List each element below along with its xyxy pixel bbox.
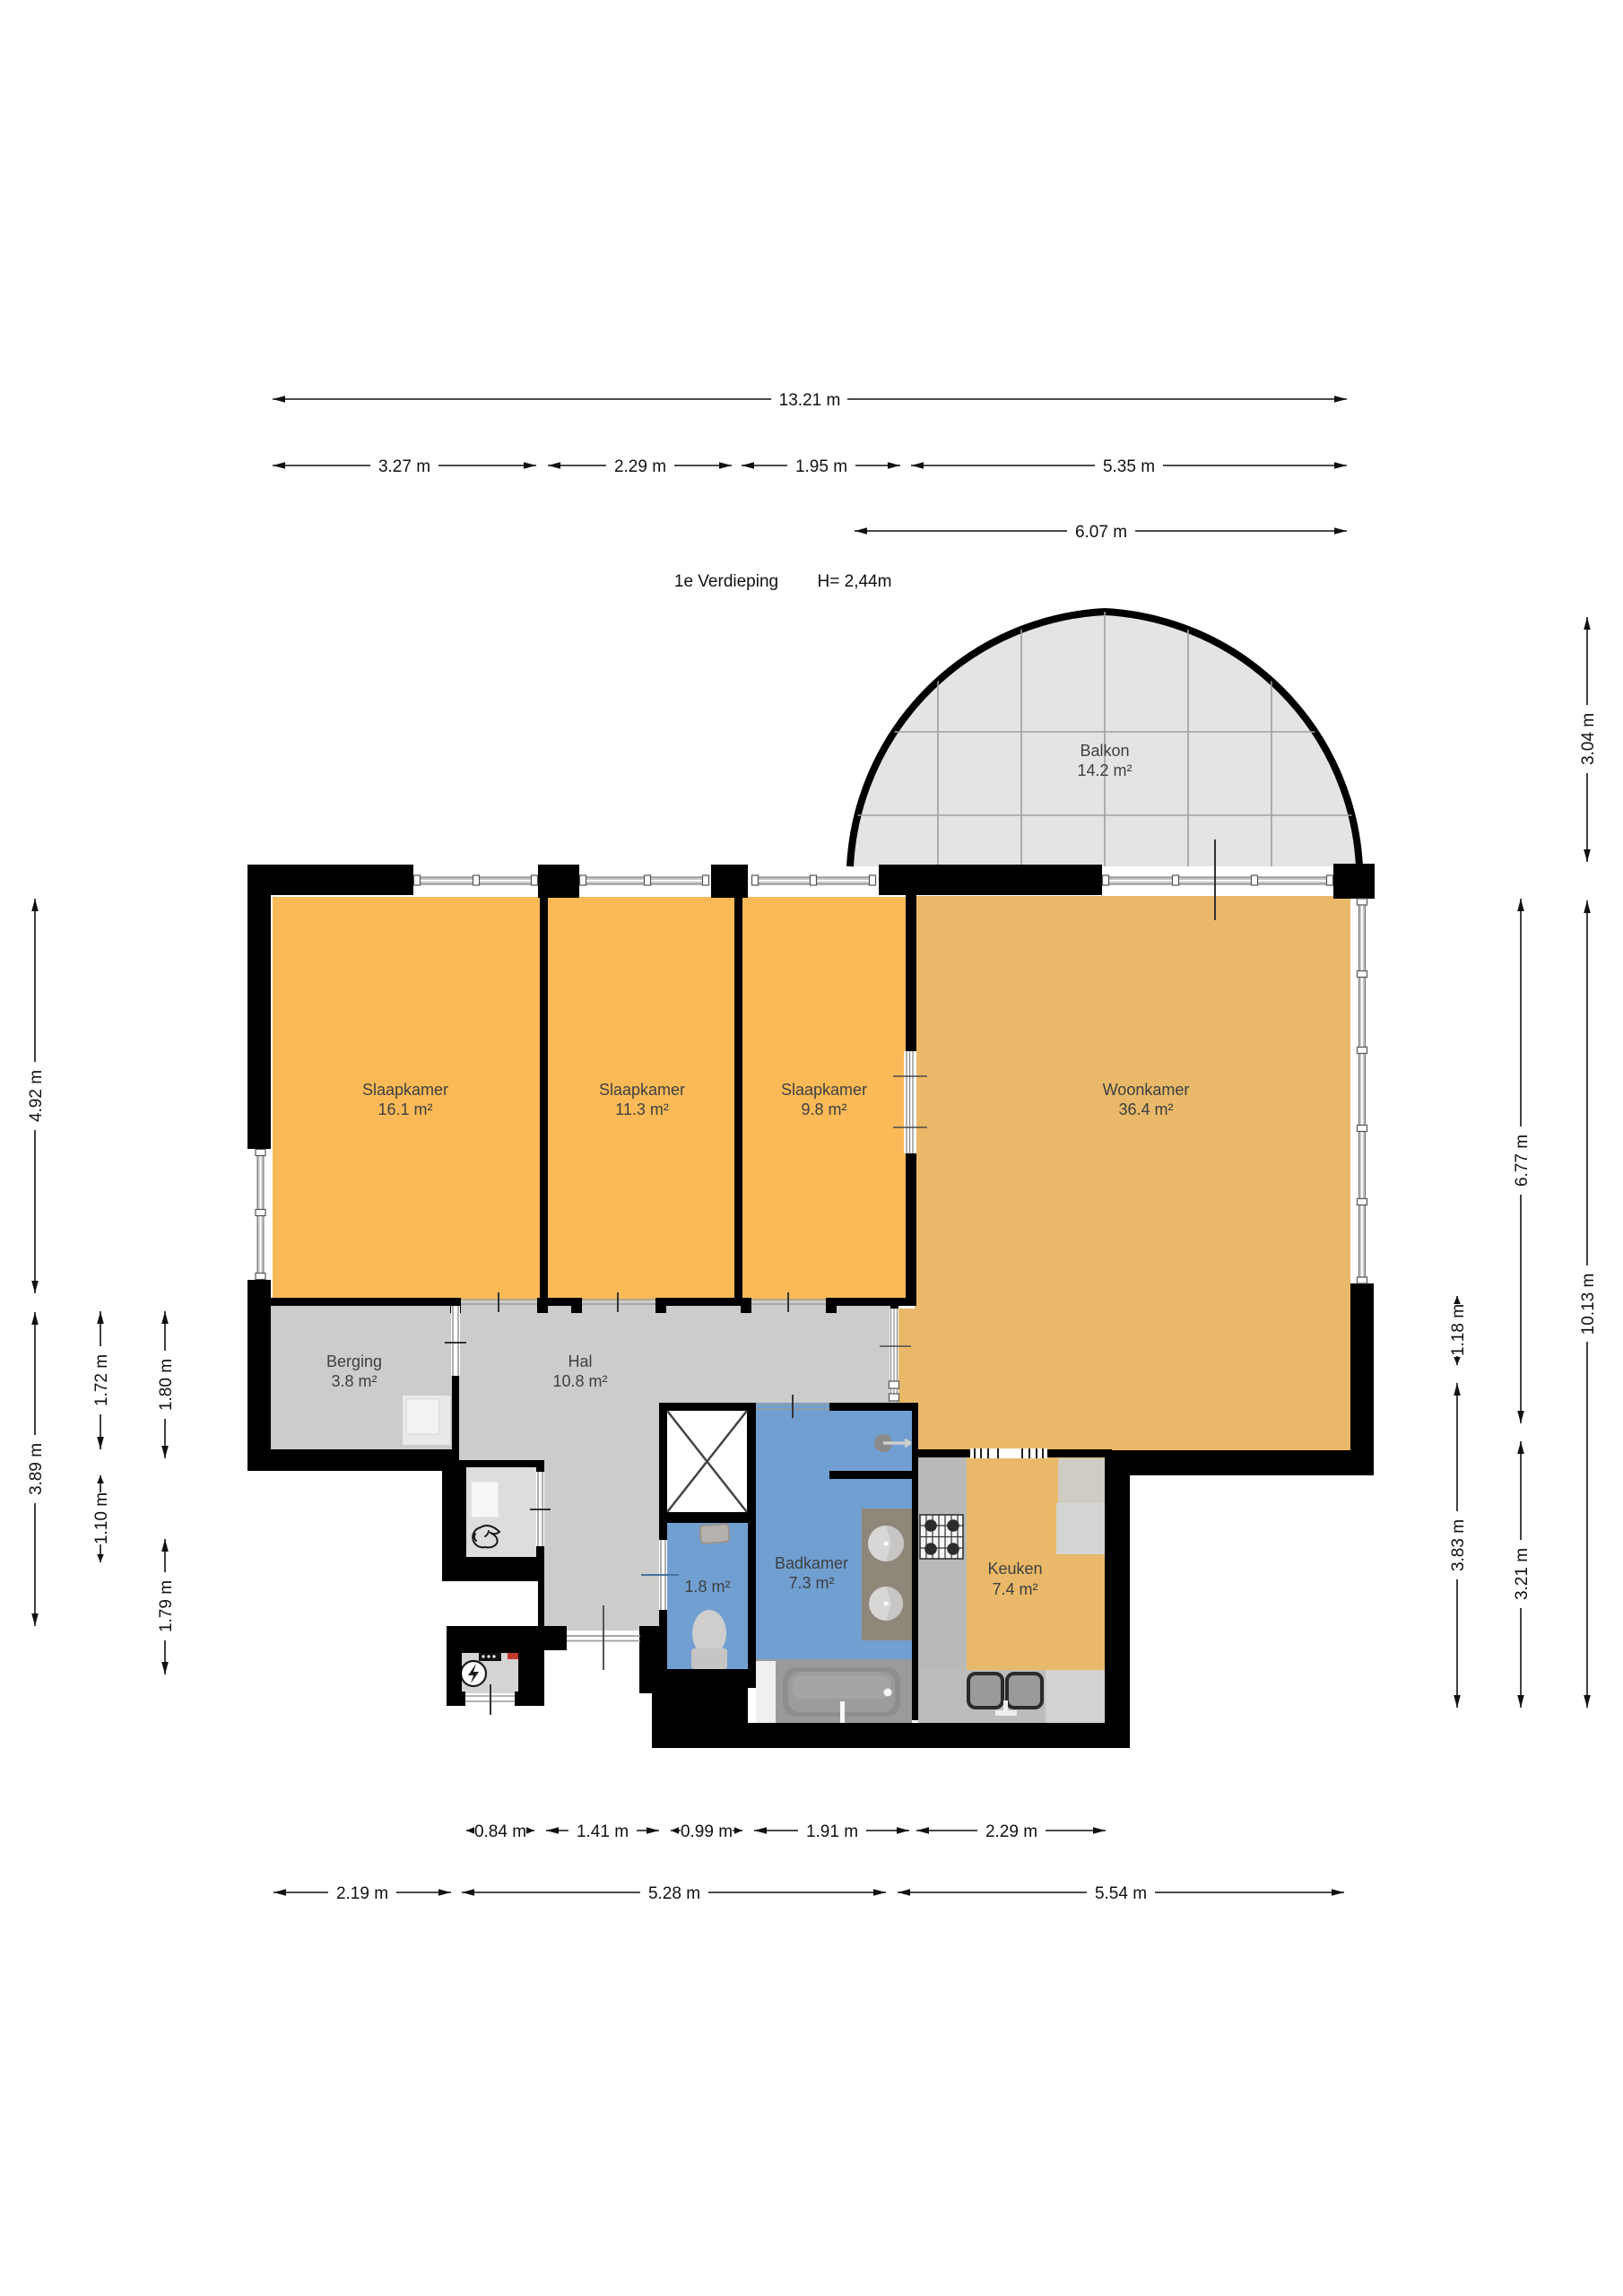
svg-text:1.80 m: 1.80 m <box>157 1359 176 1411</box>
svg-text:Balkon: Balkon <box>1080 742 1129 760</box>
svg-text:3.21 m: 3.21 m <box>1513 1548 1532 1600</box>
svg-text:Badkamer: Badkamer <box>775 1554 848 1572</box>
svg-text:Slaapkamer: Slaapkamer <box>599 1081 685 1099</box>
svg-text:13.21 m: 13.21 m <box>779 391 841 410</box>
svg-text:6.77 m: 6.77 m <box>1513 1135 1532 1187</box>
svg-text:2.29 m: 2.29 m <box>614 457 666 476</box>
svg-text:10.8 m²: 10.8 m² <box>552 1372 607 1390</box>
svg-text:7.3 m²: 7.3 m² <box>788 1574 834 1592</box>
svg-text:3.89 m: 3.89 m <box>27 1443 46 1495</box>
svg-text:Slaapkamer: Slaapkamer <box>781 1081 867 1099</box>
svg-text:Slaapkamer: Slaapkamer <box>362 1081 448 1099</box>
svg-text:5.35 m: 5.35 m <box>1103 457 1155 476</box>
svg-text:Berging: Berging <box>326 1352 382 1370</box>
svg-text:1e Verdieping: 1e Verdieping <box>674 572 778 591</box>
svg-text:Hal: Hal <box>568 1352 592 1370</box>
svg-text:1.18 m: 1.18 m <box>1449 1304 1468 1356</box>
svg-text:3.8 m²: 3.8 m² <box>331 1372 377 1390</box>
svg-text:2.29 m: 2.29 m <box>985 1822 1037 1841</box>
svg-text:9.8 m²: 9.8 m² <box>801 1100 846 1118</box>
svg-text:16.1 m²: 16.1 m² <box>378 1100 432 1118</box>
svg-text:6.07 m: 6.07 m <box>1075 523 1127 542</box>
svg-text:1.10 m: 1.10 m <box>92 1492 111 1544</box>
svg-text:14.2 m²: 14.2 m² <box>1077 761 1132 779</box>
svg-text:4.92 m: 4.92 m <box>27 1070 46 1122</box>
svg-text:H= 2,44m: H= 2,44m <box>818 572 892 591</box>
svg-text:7.4 m²: 7.4 m² <box>992 1580 1037 1598</box>
svg-text:5.54 m: 5.54 m <box>1095 1884 1147 1903</box>
svg-text:1.79 m: 1.79 m <box>157 1580 176 1632</box>
svg-text:36.4 m²: 36.4 m² <box>1118 1100 1173 1118</box>
svg-text:1.41 m: 1.41 m <box>577 1822 629 1841</box>
svg-text:3.04 m: 3.04 m <box>1579 713 1598 765</box>
svg-text:2.19 m: 2.19 m <box>336 1884 388 1903</box>
svg-text:1.91 m: 1.91 m <box>806 1822 858 1841</box>
svg-text:3.27 m: 3.27 m <box>378 457 430 476</box>
svg-text:0.99 m: 0.99 m <box>681 1822 733 1841</box>
svg-text:1.72 m: 1.72 m <box>92 1354 111 1406</box>
svg-text:0.84 m: 0.84 m <box>474 1822 526 1841</box>
svg-text:5.28 m: 5.28 m <box>648 1884 700 1903</box>
svg-text:1.95 m: 1.95 m <box>795 457 847 476</box>
svg-text:11.3 m²: 11.3 m² <box>615 1100 669 1118</box>
svg-text:Woonkamer: Woonkamer <box>1103 1081 1190 1099</box>
svg-text:1.8 m²: 1.8 m² <box>684 1578 730 1596</box>
svg-text:Keuken: Keuken <box>987 1560 1042 1578</box>
svg-text:10.13 m: 10.13 m <box>1579 1274 1598 1335</box>
svg-text:3.83 m: 3.83 m <box>1449 1519 1468 1571</box>
